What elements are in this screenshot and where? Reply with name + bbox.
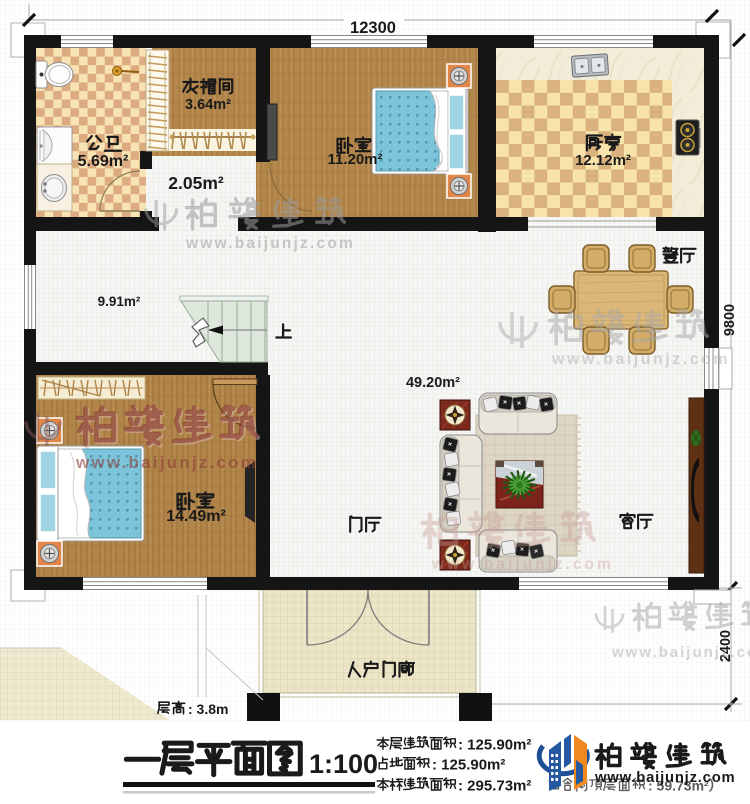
- svg-text:: 125.90m²: : 125.90m²: [458, 737, 531, 754]
- svg-text:11.20m²: 11.20m²: [327, 151, 382, 168]
- svg-text:www.baijunjz.com: www.baijunjz.com: [551, 351, 730, 368]
- svg-text:2.05m²: 2.05m²: [168, 173, 224, 193]
- svg-text:3.64m²: 3.64m²: [185, 97, 231, 113]
- svg-text:www.baijunjz.com: www.baijunjz.com: [431, 556, 614, 573]
- svg-text:www.baijunjz.com: www.baijunjz.com: [594, 770, 736, 786]
- svg-text:www.baijunjz.com: www.baijunjz.com: [611, 644, 750, 661]
- svg-text:: 3.8m: : 3.8m: [188, 701, 228, 717]
- svg-text:www.baijunjz.com: www.baijunjz.com: [185, 235, 355, 252]
- svg-text:: 295.73m²: : 295.73m²: [458, 778, 531, 795]
- svg-text:1:100: 1:100: [309, 749, 378, 779]
- svg-text:5.69m²: 5.69m²: [78, 153, 129, 170]
- svg-text:: 125.90m²: : 125.90m²: [432, 757, 505, 774]
- svg-text:12.12m²: 12.12m²: [575, 152, 631, 169]
- svg-text:12300: 12300: [350, 19, 396, 37]
- svg-text:9800: 9800: [722, 304, 738, 336]
- svg-text:9.91m²: 9.91m²: [98, 294, 141, 309]
- svg-text:www.baijunjz.com: www.baijunjz.com: [75, 453, 258, 472]
- svg-text:49.20m²: 49.20m²: [406, 375, 460, 391]
- svg-text:14.49m²: 14.49m²: [166, 508, 226, 525]
